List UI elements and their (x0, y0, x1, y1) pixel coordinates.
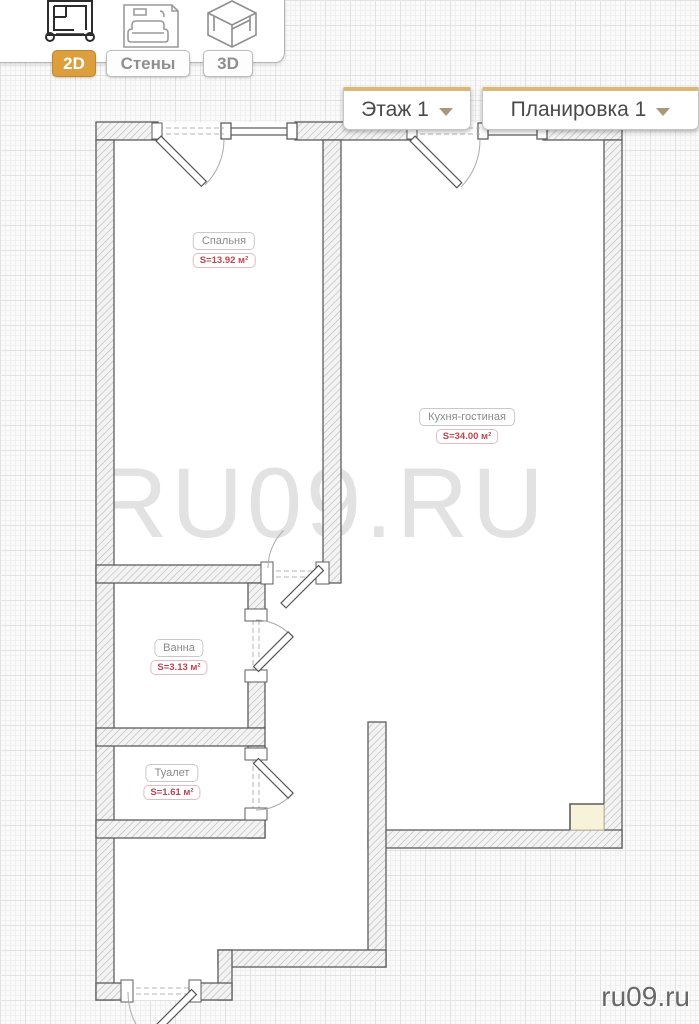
chevron-down-icon (656, 108, 670, 116)
room-3d-icon (202, 0, 262, 49)
room-label-bath[interactable]: Ванна S=3.13 м² (150, 638, 207, 675)
kitchen-shaft (570, 804, 604, 830)
room-label-bedroom[interactable]: Спальня S=13.92 м² (193, 231, 256, 268)
door-bath[interactable] (245, 609, 293, 682)
wall-bedroom-bottom (96, 565, 268, 583)
tab-3d[interactable]: 3D (203, 50, 253, 77)
floor-plan-canvas[interactable] (0, 0, 699, 1024)
room-name: Ванна (154, 639, 204, 657)
room-area: S=1.61 м² (143, 785, 200, 800)
room-area: S=13.92 м² (193, 253, 256, 268)
door-bedroom-hall[interactable] (261, 531, 329, 608)
room-name: Спальня (193, 232, 255, 250)
room-area: S=34.00 м² (436, 429, 499, 444)
chevron-down-icon (439, 108, 453, 116)
room-area: S=3.13 м² (150, 660, 207, 675)
sofa-icon (120, 3, 182, 49)
floor-selector-label: Этаж 1 (361, 98, 429, 122)
wall-right (604, 140, 622, 848)
room-name: Кухня-гостиная (419, 408, 515, 426)
layout-selector-label: Планировка 1 (511, 98, 647, 122)
wall-bedroom-divider (323, 140, 341, 583)
floor-plan-editor: RU09.RU (0, 0, 699, 1024)
room-label-toilet[interactable]: Туалет S=1.61 м² (143, 763, 200, 800)
wall-toilet-bottom (96, 820, 265, 838)
tab-walls[interactable]: Стены (106, 50, 190, 77)
door-toilet[interactable] (245, 748, 293, 820)
wall-step (218, 950, 386, 967)
wall-hall-divider (368, 722, 386, 967)
room-label-kitchen[interactable]: Кухня-гостиная S=34.00 м² (419, 407, 515, 444)
window-bedroom[interactable] (221, 123, 297, 139)
room-name: Туалет (146, 764, 199, 782)
site-label: ru09.ru (601, 981, 690, 1013)
door-entry[interactable] (121, 980, 201, 1024)
floor-selector[interactable]: Этаж 1 (343, 87, 471, 130)
layout-selector[interactable]: Планировка 1 (482, 87, 699, 130)
door-kitchen-top[interactable] (407, 123, 480, 188)
blueprint-icon (40, 0, 100, 45)
door-bedroom-top[interactable] (152, 123, 224, 186)
wall-bath-toilet-divider (96, 728, 265, 746)
wall-top-1 (96, 122, 158, 140)
walls[interactable] (96, 122, 622, 1000)
wall-kitchen-bottom (368, 830, 622, 848)
tab-2d[interactable]: 2D (52, 50, 96, 77)
